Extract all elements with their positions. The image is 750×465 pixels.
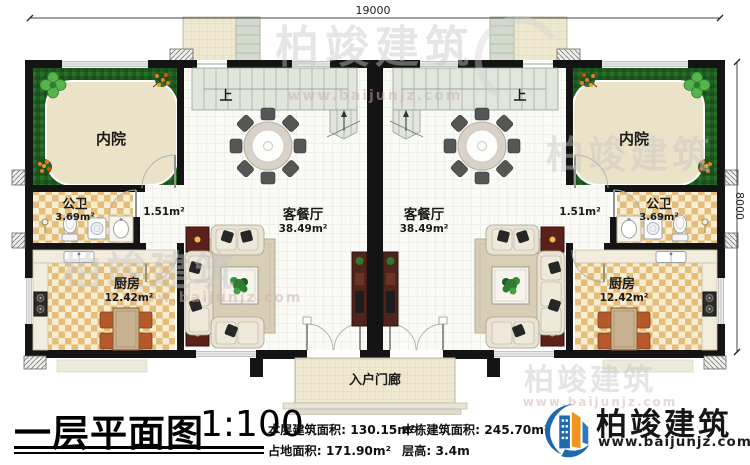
room-label-bathroom-left: 公卫 [62,196,88,211]
title-underline [14,452,264,454]
stat-building-area: 本栋建筑面积: 245.70m² [402,420,549,438]
room-area-bathroom-right: 3.69m² [639,212,678,223]
stat-footprint-area: 占地面积: 171.90m² [268,441,391,459]
porch-step [283,403,467,409]
room-label-kitchen-left: 厨房 [114,276,140,292]
room-area-living-left: 38.49m² [279,223,328,235]
room-area-living-right: 38.49m² [400,223,449,235]
room-area-kitchen-left: 12.42m² [105,292,154,304]
room-area-bathroom-left: 3.69m² [55,212,94,223]
room-label-living-right: 客餐厅 [403,206,445,223]
blueprint-page: 柏竣建筑 www.baijunjz.com 柏竣建筑 www.baijunjz.… [0,0,750,465]
stat-floor-area: 本层建筑面积: 130.15m² [268,420,415,438]
room-label-bathroom-right: 公卫 [646,196,672,211]
room-label-courtyard-left: 内院 [96,130,126,148]
watermark-text: 柏竣建筑 [62,249,238,295]
company-logo-website: www.baijunjz.com [598,434,750,450]
watermark-text: 柏竣建筑 [524,363,656,398]
watermark-text: 柏竣建筑 [275,22,475,73]
dim-top-label: 19000 [356,4,391,17]
dim-right-label: 8000 [733,192,746,220]
stairs-up-right: 上 [513,89,526,104]
watermark-url: www.baijunjz.com [128,290,303,306]
stat-floor-height: 层高: 3.4m [402,441,470,459]
room-label-living-left: 客餐厅 [282,206,324,223]
porch-step [289,409,461,415]
hall-area-right: 1.51m² [559,206,601,218]
room-label-kitchen-right: 厨房 [609,276,635,292]
stairs-up-left: 上 [219,89,232,104]
party-wall [367,60,383,358]
hall-area-left: 1.51m² [143,206,185,218]
floor-plan-drawing: 柏竣建筑 www.baijunjz.com 柏竣建筑 www.baijunjz.… [0,0,750,420]
company-logo-icon [538,400,596,458]
porch-label: 入户门廊 [349,372,401,388]
room-area-kitchen-right: 12.42m² [600,292,649,304]
room-label-courtyard-right: 内院 [619,130,649,148]
watermark-url: www.baijunjz.com [288,88,463,104]
title-underline [14,446,264,449]
